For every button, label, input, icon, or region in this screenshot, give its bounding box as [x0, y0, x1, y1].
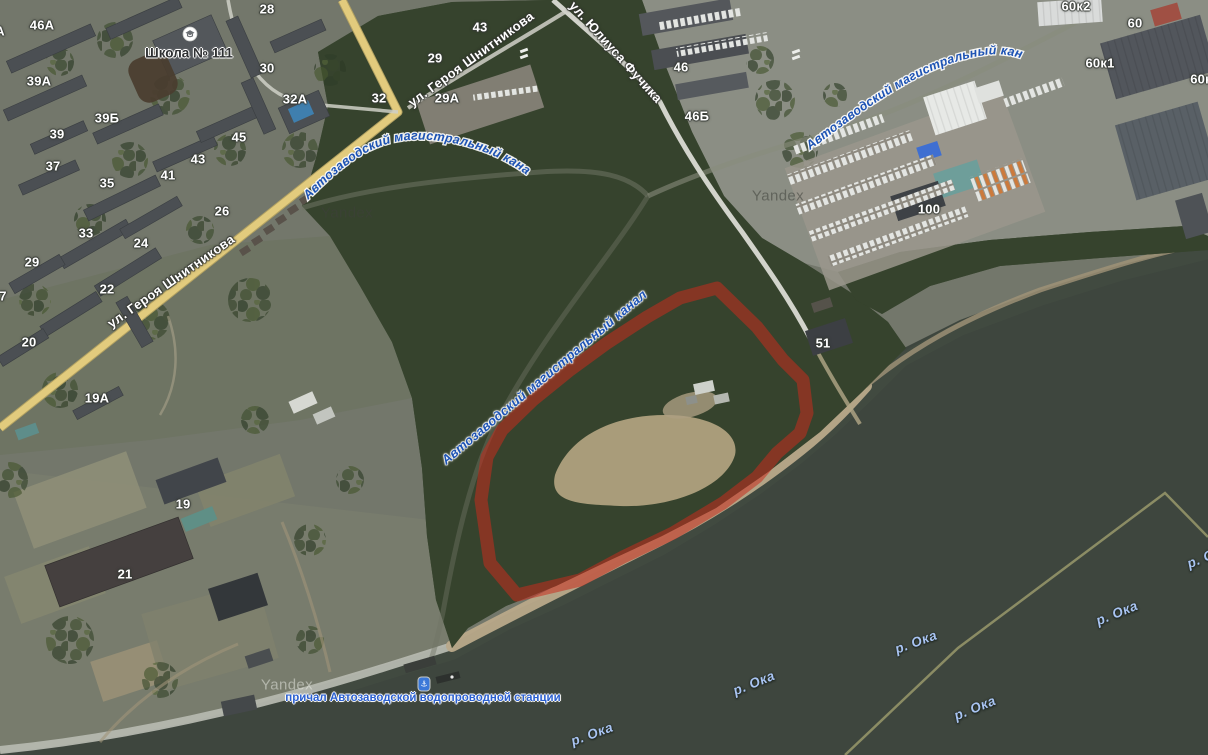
satellite-imagery [0, 0, 1208, 755]
pier-poi-label[interactable]: причал Автозаводской водопроводной станц… [285, 692, 560, 704]
anchor-icon[interactable]: ⚓ [419, 678, 430, 691]
satellite-map-viewport[interactable]: Автозаводский магистральный канал Автоза… [0, 0, 1208, 755]
school-poi-label[interactable]: Школа № 111 [145, 46, 233, 61]
school-icon[interactable] [183, 27, 198, 42]
